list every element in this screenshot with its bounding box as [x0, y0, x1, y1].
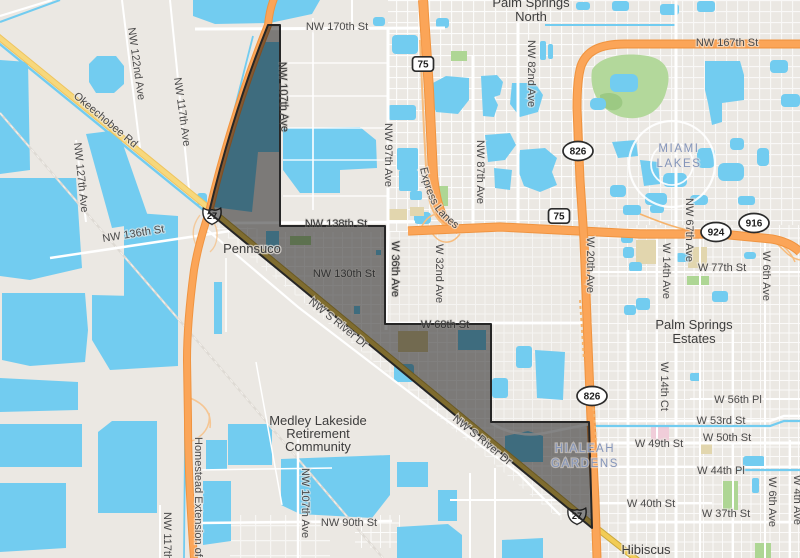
svg-text:MIAMI: MIAMI	[658, 143, 699, 155]
svg-text:75: 75	[553, 212, 565, 223]
svg-text:Pennsuco: Pennsuco	[223, 241, 281, 256]
svg-text:NW 90th St: NW 90th St	[321, 517, 377, 529]
svg-text:HIALEAH: HIALEAH	[555, 443, 615, 455]
svg-text:NW 87th Ave: NW 87th Ave	[474, 140, 486, 204]
svg-text:W 20th Ave: W 20th Ave	[584, 237, 596, 293]
svg-text:W 40th St: W 40th St	[627, 498, 675, 510]
svg-text:924: 924	[708, 228, 725, 239]
svg-text:W 37th St: W 37th St	[702, 508, 750, 520]
svg-text:75: 75	[417, 60, 429, 71]
svg-text:W 4th Ave: W 4th Ave	[791, 475, 800, 525]
svg-text:W 32nd Ave: W 32nd Ave	[433, 244, 445, 303]
svg-text:Palm Springs: Palm Springs	[655, 317, 733, 332]
svg-text:NW 97th Ave: NW 97th Ave	[382, 123, 394, 187]
svg-text:W 49th St: W 49th St	[635, 438, 683, 450]
svg-text:NW 107th Ave: NW 107th Ave	[276, 62, 290, 133]
svg-text:NW 170th St: NW 170th St	[306, 21, 368, 33]
svg-text:GARDENS: GARDENS	[551, 458, 619, 470]
svg-text:W 50th St: W 50th St	[703, 432, 751, 444]
svg-text:916: 916	[746, 219, 763, 230]
svg-text:Community: Community	[285, 439, 351, 454]
svg-text:W 44th Pl: W 44th Pl	[697, 465, 745, 477]
svg-text:NW 82nd Ave: NW 82nd Ave	[525, 40, 537, 107]
svg-text:Estates: Estates	[672, 331, 716, 346]
svg-text:LAKES: LAKES	[656, 158, 701, 170]
svg-text:W 6th Ave: W 6th Ave	[766, 477, 778, 527]
svg-text:W 53rd St: W 53rd St	[697, 415, 746, 427]
svg-text:W 36th Ave: W 36th Ave	[389, 241, 401, 297]
svg-text:Hibiscus: Hibiscus	[621, 542, 671, 557]
svg-text:NW 107th Ave: NW 107th Ave	[299, 468, 311, 538]
svg-text:W 14th Ct: W 14th Ct	[658, 362, 670, 411]
svg-text:826: 826	[584, 392, 601, 403]
svg-text:NW 130th St: NW 130th St	[313, 268, 375, 280]
svg-text:W 6th Ave: W 6th Ave	[760, 251, 772, 301]
svg-text:North: North	[515, 9, 547, 24]
svg-text:826: 826	[570, 147, 587, 158]
svg-text:NW 138th St: NW 138th St	[305, 218, 367, 230]
svg-text:W 14th Ave: W 14th Ave	[660, 243, 672, 299]
svg-text:NW 67th Ave: NW 67th Ave	[683, 198, 695, 262]
svg-text:Homestead Extension of: Homestead Extension of	[192, 437, 204, 558]
svg-text:NW 167th St: NW 167th St	[696, 37, 758, 49]
svg-text:W 77th St: W 77th St	[698, 262, 746, 274]
svg-text:NW 117th Ave: NW 117th Ave	[161, 512, 173, 558]
svg-text:W 68th St: W 68th St	[421, 319, 469, 331]
svg-text:W 56th Pl: W 56th Pl	[714, 394, 762, 406]
